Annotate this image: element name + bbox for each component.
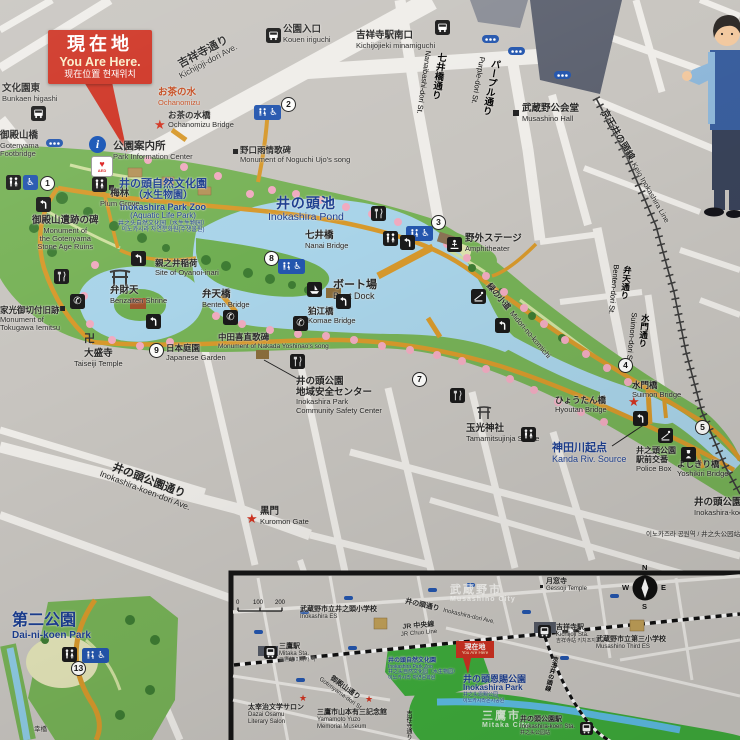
inset-label-yamamoto-museum: 三鷹市山本有三記念館Yamamoto YuzoMemorial Museum xyxy=(317,709,387,730)
label-benten-bridge: 弁天橋Benten Bridge xyxy=(202,290,250,309)
accessible-toilet-icon: ♿ xyxy=(278,259,305,274)
label-amphitheater: 野外ステージAmphitheater xyxy=(465,234,522,253)
label-inokashira-koen-station-sub: 이노카즈라 공원역 / 井之头公园站 xyxy=(646,531,740,538)
label-park-information-center: 公園案内所Park Information Center xyxy=(113,141,193,161)
wheelchair-access-icon: ♿ xyxy=(23,175,38,190)
label-dai-ni-koen-park: 第二公園Dai-ni-koen Park xyxy=(12,612,91,641)
park-map-sign: i ♥AED ♿ ♿ ♿ ♿ ♿ ✆ ✆ ✆ 1 2 3 4 5 7 8 9 1… xyxy=(0,0,740,740)
ramp-arrow-icon xyxy=(633,411,648,426)
information-icon: i xyxy=(89,136,106,153)
map-marker-8: 8 xyxy=(264,251,279,266)
compass-west: W xyxy=(622,584,629,592)
map-marker-7: 7 xyxy=(412,372,427,387)
label-community-safety-center: 井の頭公園地域安全センターInokashira ParkCommunity Sa… xyxy=(296,377,382,415)
restaurant-icon xyxy=(371,206,386,221)
inset-label-inokashira-koen-station: 井の頭公園駅Inokashira-koen Sta.井之头公园站 xyxy=(520,716,575,736)
slide-icon xyxy=(471,289,486,304)
label-iemitsu-monument: 家光御切付旧跡Monument ofTokugawa Iemitsu xyxy=(0,306,60,332)
map-marker-3: 3 xyxy=(431,215,446,230)
star-marker: ★ xyxy=(299,694,307,703)
label-nanai-bridge: 七井橋Nanai Bridge xyxy=(305,231,348,250)
restaurant-icon xyxy=(450,388,465,403)
label-oyanoi-inari: 親之井稲荷Site of Oyanoi-inari xyxy=(155,259,219,277)
inset-label-dazai-salon: 太宰治文学サロンDazai OsamuLiterary Salon xyxy=(248,704,304,725)
train-station-icon xyxy=(264,646,277,659)
phone-icon: ✆ xyxy=(223,310,238,325)
bus-stop-icon xyxy=(46,139,63,147)
ramp-arrow-icon xyxy=(336,294,351,309)
slide-icon xyxy=(658,428,673,443)
toilet-icon xyxy=(92,177,107,192)
train-station-icon xyxy=(538,625,551,638)
map-marker-1: 1 xyxy=(40,176,55,191)
inset-label-kichijoji-dori: 吉祥寺通り xyxy=(404,710,413,740)
toilet-icon xyxy=(62,647,77,662)
boat-icon xyxy=(307,282,322,297)
label-kanda-river-source: 神田川起点Kanda Riv. Source xyxy=(552,442,626,464)
label-taiseiji-temple: 大盛寺Taiseiji Temple xyxy=(74,349,123,368)
inset-label-mitaka-station: 三鷹駅Mitaka Sta.三鷹站 미타카 역 xyxy=(279,643,315,663)
you-are-here-mini-sign: 現在地 You Are Here xyxy=(456,641,494,658)
compass-east: E xyxy=(661,584,666,592)
bus-stop-icon xyxy=(508,47,525,55)
restaurant-icon xyxy=(54,269,69,284)
toilet-icon xyxy=(383,231,398,246)
bus-icon xyxy=(266,28,281,43)
label-japanese-garden: 日本庭園Japanese Garden xyxy=(166,344,226,362)
restaurant-icon xyxy=(290,354,305,369)
map-marker-5: 5 xyxy=(695,420,710,435)
label-kouen-iriguchi: 公園入口Kouen iriguchi xyxy=(283,25,331,44)
label-ochanomizu-bridge: お茶の水橋Ochanomizu Bridge xyxy=(168,111,234,129)
inset-label-musashino-city: 武蔵野市Musashino City xyxy=(450,584,516,604)
phone-icon: ✆ xyxy=(70,294,85,309)
train-station-icon xyxy=(580,722,593,735)
label-kuromon-gate: 黒門Kuromon Gate xyxy=(260,507,309,526)
label-kichijojieki-minamiguchi: 吉祥寺駅南口Kichijojieki minamiguchi xyxy=(356,31,435,50)
label-gotenyama-footbridge: 御殿山橋GotenyamaFootbridge xyxy=(0,131,39,158)
inset-label-musashino-third-es: 武蔵野市立第三小学校Musashino Third ES xyxy=(596,636,666,651)
accessible-toilet-icon: ♿ xyxy=(254,105,281,120)
label-noguchi-monument: 野口雨情歌碑Monument of Noguchi Ujo's song xyxy=(240,146,350,164)
inset-label-zoo: 井の頭自然文化園Inokashira Park Zoo井之头自然文化园（水生物园… xyxy=(388,658,458,682)
compass-rose xyxy=(633,576,658,601)
label-plum-grove: 梅林Plum Grove xyxy=(100,189,140,208)
label-inokashira-koen-station: 井の頭公園駅Inokashira-koen Sta. xyxy=(694,498,740,517)
ramp-arrow-icon xyxy=(495,318,510,333)
label-nakada-monument: 中田喜直歌碑Monument of Nakada Yoshinao's song xyxy=(218,333,329,350)
inset-label-inokashira-es: 武蔵野市立井之頭小学校Inokashira ES xyxy=(300,606,377,621)
toilet-icon xyxy=(6,175,21,190)
ramp-arrow-icon xyxy=(36,197,51,212)
label-police-box: 井之頭公園駅前交番Police Box xyxy=(636,447,676,473)
label-gotenyama-ruins: 御殿山遺跡の碑Monument ofthe GotenyamaStone Age… xyxy=(32,216,99,252)
bus-icon xyxy=(31,106,46,121)
label-ochanomizu: お茶の水Ochanomizu xyxy=(158,88,200,107)
label-benzaiten-shrine: 弁財天Benzaiten Shrine xyxy=(110,286,167,305)
star-marker: ★ xyxy=(365,695,373,704)
ramp-arrow-icon xyxy=(146,314,161,329)
star-marker: ★ xyxy=(154,118,166,131)
you-are-here-sign: 現在地 You Are Here. 现在位置 현재위치 xyxy=(48,30,152,84)
compass-north: N xyxy=(642,564,647,572)
inset-label-inokashira-park: 井の頭恩賜公園Inokashira Park井之头恩赐公园이노카시라온시공원 xyxy=(463,674,526,704)
stage-icon xyxy=(447,237,462,252)
label-komae-bridge: 狛江橋Komae Bridge xyxy=(308,307,356,325)
map-marker-4: 4 xyxy=(618,358,633,373)
bus-icon xyxy=(435,20,450,35)
label-musashino-hall: 武蔵野公会堂Musashino Hall xyxy=(522,104,579,123)
label-yoshikiri-bridge: よしきり橋Yoshikiri Bridge xyxy=(677,460,728,478)
map-marker-13: 13 xyxy=(71,661,86,676)
scale-label-200: 200 xyxy=(275,600,285,606)
scale-label-0: 0 xyxy=(236,600,239,606)
aed-icon: ♥AED xyxy=(91,156,113,177)
map-marker-2: 2 xyxy=(281,97,296,112)
label-inokashira-pond: 井の頭池Inokashira Pond xyxy=(268,196,344,223)
label-sachibashi: 幸橋 xyxy=(34,726,47,733)
ramp-arrow-icon xyxy=(400,235,415,250)
toilet-icon xyxy=(521,427,536,442)
label-bunkaen-higashi: 文化園東Bunkaen higashi xyxy=(2,84,57,103)
police-icon xyxy=(681,447,696,462)
bus-stop-icon xyxy=(482,35,499,43)
phone-icon: ✆ xyxy=(293,316,308,331)
bus-stop-icon xyxy=(554,71,571,79)
scale-label-100: 100 xyxy=(253,600,263,606)
star-marker: ★ xyxy=(246,512,258,525)
accessible-toilet-icon: ♿ xyxy=(82,648,109,663)
inset-label-kichijoji-station: 吉祥寺駅Kichijoji Sta.吉祥寺站 키치조지 역 xyxy=(556,624,602,644)
compass-south: S xyxy=(642,603,647,611)
map-marker-9: 9 xyxy=(149,343,164,358)
label-hyoutan-bridge: ひょうたん橋Hyoutan Bridge xyxy=(555,396,607,414)
ramp-arrow-icon xyxy=(131,251,146,266)
inset-label-gessoji-temple: 月窓寺Gessoji Temple xyxy=(546,578,587,593)
star-marker: ★ xyxy=(628,395,640,408)
temple-manji-icon: 卍 xyxy=(84,334,95,345)
